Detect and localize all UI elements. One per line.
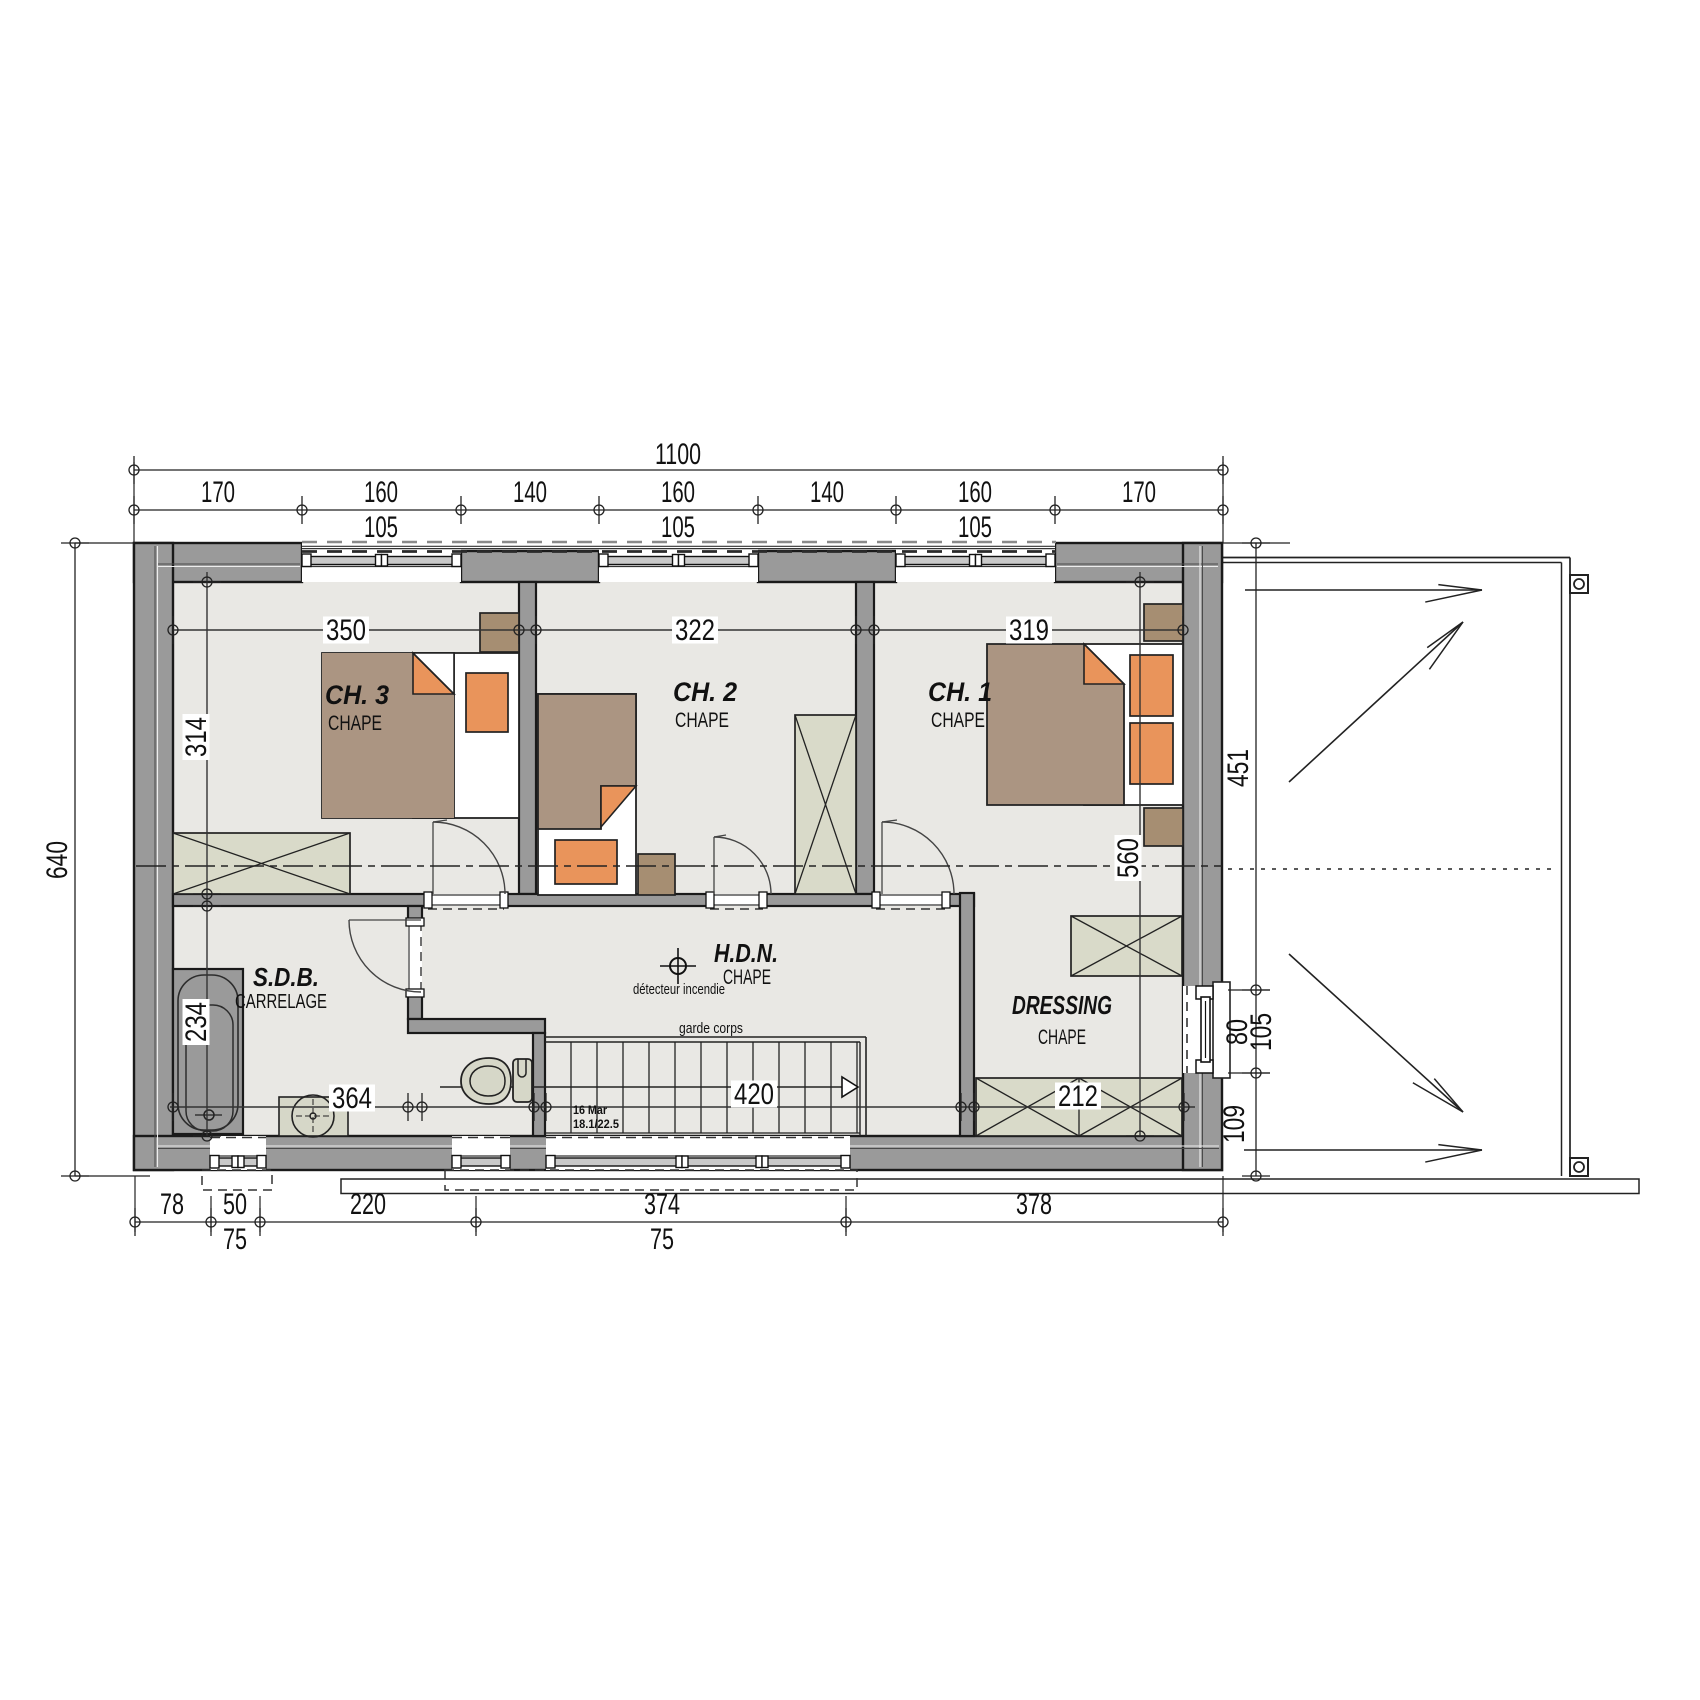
svg-text:109: 109	[1218, 1105, 1251, 1143]
svg-text:640: 640	[41, 841, 74, 879]
svg-text:S.D.B.: S.D.B.	[253, 962, 319, 992]
svg-text:378: 378	[1016, 1188, 1052, 1221]
svg-text:350: 350	[326, 614, 366, 647]
svg-text:CHAPE: CHAPE	[723, 966, 771, 989]
svg-text:75: 75	[223, 1223, 247, 1256]
svg-text:75: 75	[650, 1223, 674, 1256]
svg-text:212: 212	[1058, 1080, 1098, 1113]
svg-text:garde corps: garde corps	[679, 1020, 743, 1037]
svg-text:220: 220	[350, 1188, 386, 1221]
svg-text:CHAPE: CHAPE	[328, 712, 382, 735]
svg-text:560: 560	[1112, 838, 1145, 878]
svg-text:374: 374	[644, 1188, 680, 1221]
svg-text:CH. 3: CH. 3	[325, 680, 389, 710]
svg-text:16 Mar: 16 Mar	[573, 1103, 607, 1117]
svg-text:420: 420	[734, 1078, 774, 1111]
svg-text:160: 160	[661, 476, 695, 509]
svg-text:140: 140	[513, 476, 547, 509]
svg-text:CHAPE: CHAPE	[675, 709, 729, 732]
svg-text:CH. 2: CH. 2	[673, 677, 737, 707]
svg-text:170: 170	[1122, 476, 1156, 509]
svg-text:H.D.N.: H.D.N.	[714, 938, 778, 968]
svg-text:78: 78	[160, 1188, 184, 1221]
svg-text:DRESSING: DRESSING	[1012, 990, 1112, 1020]
svg-text:CHAPE: CHAPE	[1038, 1026, 1086, 1049]
svg-text:18.1/22.5: 18.1/22.5	[573, 1117, 619, 1131]
svg-text:105: 105	[958, 511, 992, 544]
svg-text:détecteur incendie: détecteur incendie	[633, 981, 725, 998]
svg-text:451: 451	[1222, 749, 1255, 787]
svg-text:1100: 1100	[655, 438, 701, 471]
svg-text:319: 319	[1009, 614, 1049, 647]
svg-text:105: 105	[661, 511, 695, 544]
svg-text:105: 105	[364, 511, 398, 544]
svg-text:322: 322	[675, 614, 715, 647]
svg-text:314: 314	[180, 717, 213, 757]
svg-text:CHAPE: CHAPE	[931, 709, 985, 732]
svg-text:170: 170	[201, 476, 235, 509]
svg-text:160: 160	[958, 476, 992, 509]
svg-text:CH. 1: CH. 1	[928, 677, 992, 707]
svg-text:364: 364	[332, 1082, 372, 1115]
svg-text:160: 160	[364, 476, 398, 509]
svg-text:50: 50	[223, 1188, 247, 1221]
svg-text:140: 140	[810, 476, 844, 509]
svg-text:CARRELAGE: CARRELAGE	[235, 991, 327, 1013]
svg-text:105: 105	[1245, 1013, 1278, 1051]
svg-text:234: 234	[180, 1002, 213, 1042]
